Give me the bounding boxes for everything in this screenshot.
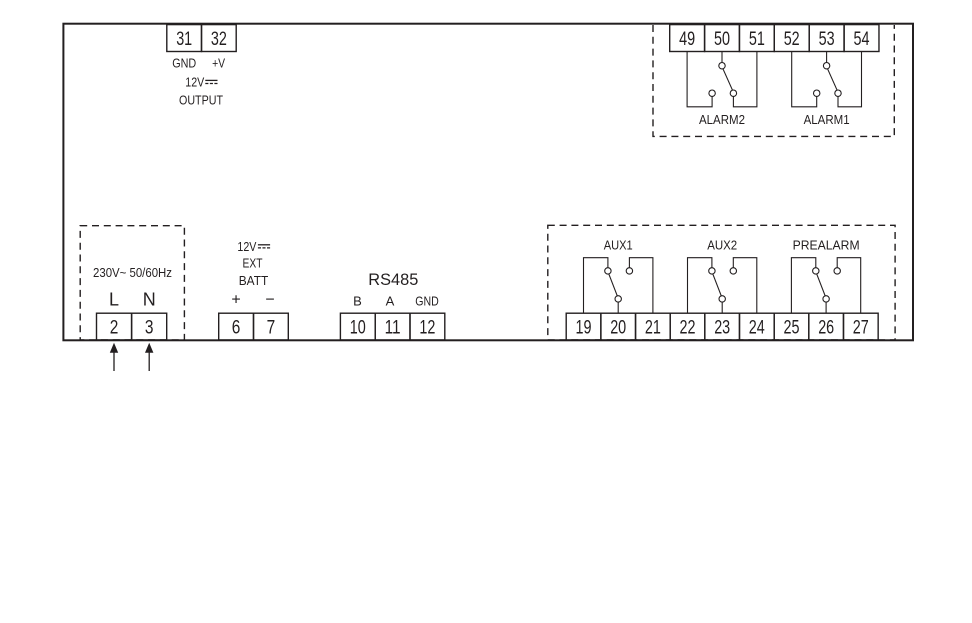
svg-text:10: 10 [350,317,366,339]
svg-text:52: 52 [784,28,800,50]
svg-text:51: 51 [749,28,765,50]
svg-text:230V~ 50/60Hz: 230V~ 50/60Hz [93,265,172,280]
svg-text:50: 50 [714,28,730,50]
svg-text:31: 31 [176,28,192,50]
svg-text:12V: 12V [237,239,256,254]
svg-text:54: 54 [854,28,870,50]
svg-text:21: 21 [645,317,661,339]
svg-text:53: 53 [819,28,835,50]
svg-text:6: 6 [232,317,241,339]
svg-text:L: L [109,290,119,310]
svg-text:26: 26 [818,317,834,339]
svg-text:+V: +V [212,55,225,70]
svg-text:2: 2 [110,317,119,339]
svg-text:GND: GND [172,55,196,70]
svg-text:AUX2: AUX2 [707,238,737,253]
svg-text:11: 11 [385,317,401,339]
svg-text:EXT: EXT [243,256,263,271]
svg-text:GND: GND [415,293,439,308]
svg-text:BATT: BATT [239,273,269,288]
svg-text:12: 12 [419,317,435,339]
svg-text:N: N [143,290,156,310]
svg-text:+: + [231,292,240,309]
svg-text:3: 3 [145,317,154,339]
svg-text:22: 22 [680,317,696,339]
svg-text:20: 20 [610,317,626,339]
svg-text:49: 49 [679,28,695,50]
svg-text:ALARM1: ALARM1 [804,112,850,127]
svg-text:32: 32 [211,28,227,50]
svg-text:B: B [353,293,362,308]
svg-text:ALARM2: ALARM2 [699,112,745,127]
svg-text:−: − [265,292,274,309]
svg-text:A: A [386,293,395,308]
svg-text:12V: 12V [185,75,204,90]
svg-text:25: 25 [784,317,800,339]
svg-text:AUX1: AUX1 [604,238,633,253]
svg-text:PREALARM: PREALARM [793,238,860,253]
svg-text:19: 19 [576,317,592,339]
svg-text:7: 7 [267,317,276,339]
svg-text:RS485: RS485 [368,270,418,289]
svg-text:23: 23 [714,317,730,339]
svg-text:OUTPUT: OUTPUT [179,92,223,107]
svg-text:27: 27 [853,317,869,339]
svg-text:24: 24 [749,317,765,339]
